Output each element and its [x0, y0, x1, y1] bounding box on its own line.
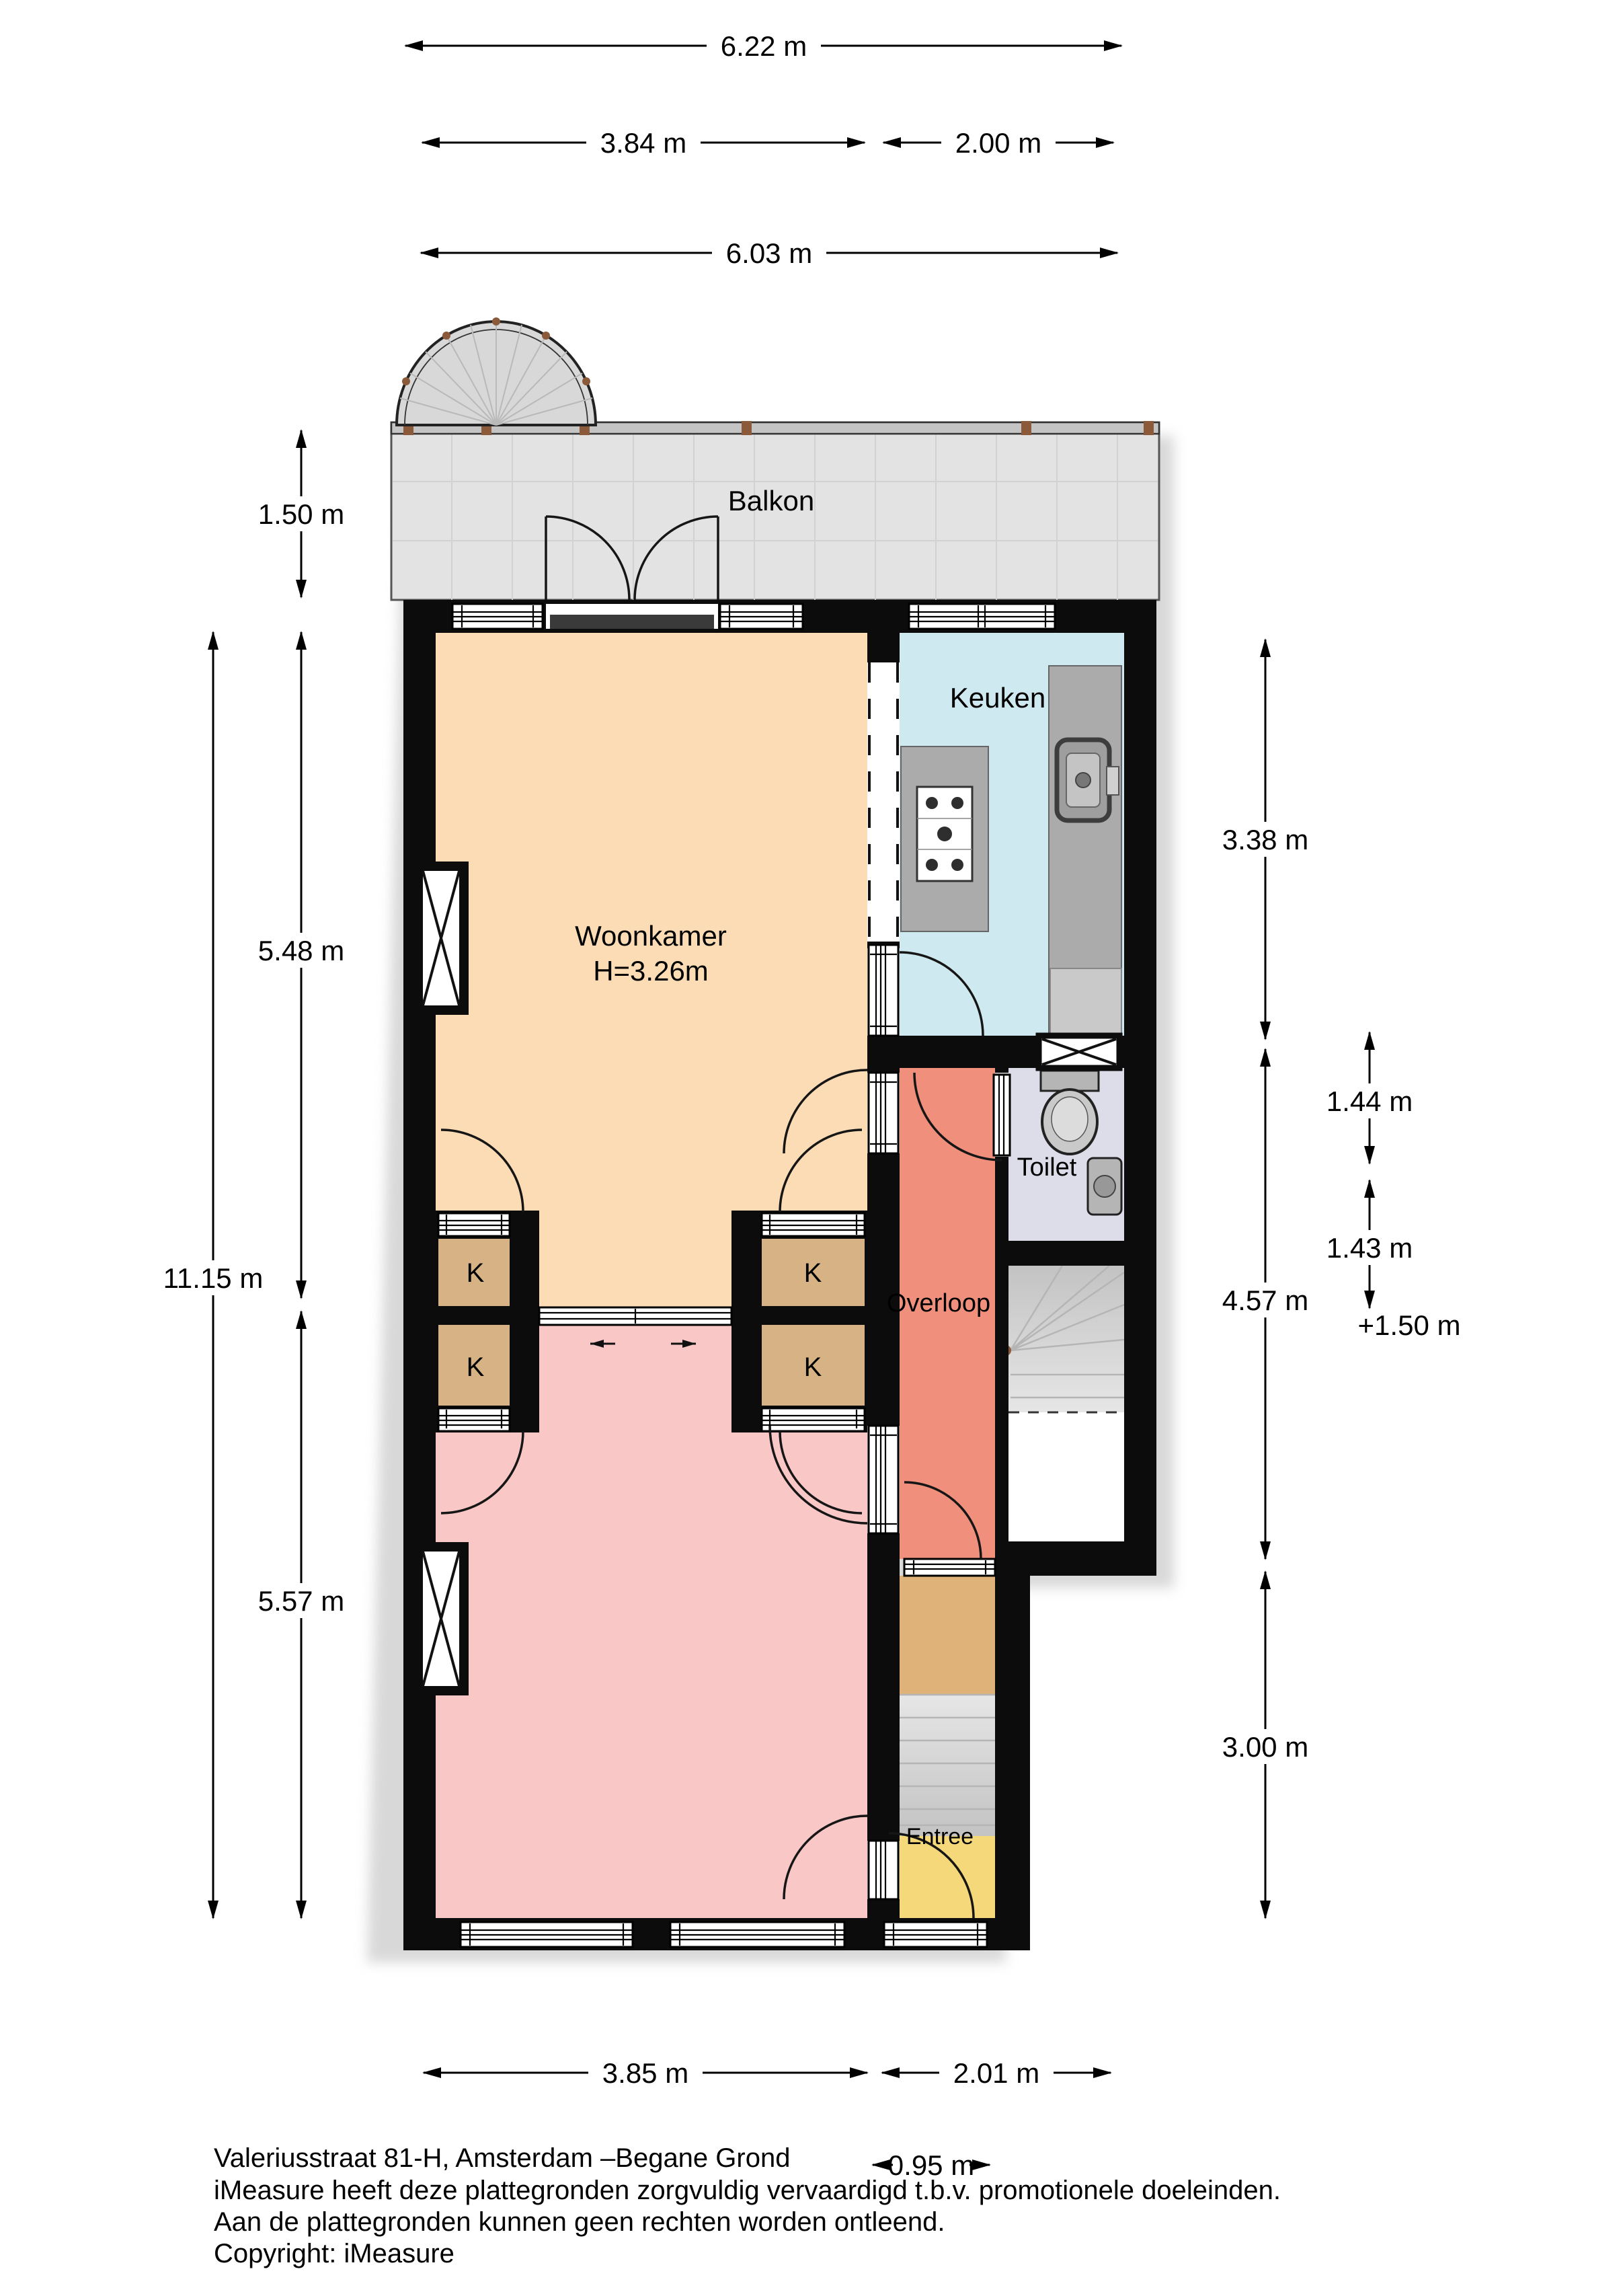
balcony-label: Balkon — [728, 485, 814, 516]
dim-stair-depth: 1.43 m — [1312, 1180, 1427, 1308]
chimney-icon-woonkamer — [418, 866, 464, 1010]
door-sill-overloop-end — [904, 1559, 995, 1576]
dim-top-right: 2.00 m — [883, 125, 1113, 160]
svg-text:3.38 m: 3.38 m — [1222, 824, 1308, 855]
svg-text:1.43 m: 1.43 m — [1327, 1232, 1413, 1264]
dim-total-depth: 11.15 m — [147, 632, 279, 1918]
entry-staircase — [900, 1695, 995, 1836]
svg-text:5.48 m: 5.48 m — [258, 935, 344, 966]
window — [720, 604, 803, 629]
dim-front-room-depth: 5.57 m — [244, 1311, 358, 1918]
stairwell-void — [1008, 1412, 1124, 1541]
svg-text:1.50 m: 1.50 m — [258, 498, 344, 530]
spiral-staircase-icon — [397, 317, 596, 425]
woonkamer-height-label: H=3.26m — [593, 955, 709, 987]
svg-text:11.15 m: 11.15 m — [163, 1262, 264, 1294]
door-sill-entree — [869, 1841, 898, 1899]
window — [452, 604, 543, 629]
toilet-label: Toilet — [1017, 1153, 1077, 1182]
closet-label: K — [467, 1352, 485, 1382]
stove-icon — [917, 787, 972, 881]
dim-toilet-depth: 1.44 m — [1312, 1032, 1427, 1163]
hall-floor — [900, 1576, 995, 1695]
svg-text:3.00 m: 3.00 m — [1222, 1731, 1308, 1763]
dim-bottom-right: 2.01 m — [882, 2055, 1111, 2090]
overloop-label: Overloop — [887, 1289, 990, 1317]
washbasin-icon — [1088, 1158, 1121, 1215]
door-sill-overloop — [869, 1073, 898, 1153]
dim-hall-depth: 3.00 m — [1208, 1572, 1322, 1918]
dim-keuken-depth: 3.38 m — [1208, 640, 1322, 1039]
svg-text:3.84 m: 3.84 m — [600, 127, 686, 159]
dim-top-overall: 6.22 m — [405, 28, 1121, 63]
toilet-icon — [1041, 1071, 1099, 1154]
vent-shaft-icon — [1039, 1036, 1119, 1068]
keuken-label: Keuken — [950, 682, 1045, 714]
closet-label: K — [467, 1258, 485, 1288]
footer-disclaimer-2: Aan de plattegronden kunnen geen rechten… — [214, 2207, 945, 2237]
door-sill-front-room — [869, 1426, 898, 1533]
svg-text:6.22 m: 6.22 m — [721, 30, 807, 62]
svg-text:2.01 m: 2.01 m — [953, 2057, 1039, 2089]
dim-balcony-depth: 1.50 m — [244, 430, 358, 597]
sink-icon — [1057, 740, 1119, 820]
window — [670, 1922, 844, 1947]
chimney-icon-front-room — [418, 1547, 464, 1691]
footer-disclaimer-1: iMeasure heeft deze plattegronden zorgvu… — [214, 2176, 1281, 2205]
svg-text:5.57 m: 5.57 m — [258, 1585, 344, 1617]
kitchen-appliance — [1050, 968, 1121, 1038]
svg-text:4.57 m: 4.57 m — [1222, 1285, 1308, 1316]
front-door-sill — [884, 1922, 987, 1947]
door-sill-toilet — [994, 1075, 1010, 1155]
window — [461, 1922, 633, 1947]
svg-text:2.00 m: 2.00 m — [955, 127, 1041, 159]
dim-bottom-left: 3.85 m — [424, 2055, 867, 2090]
dim-woonkamer-depth: 5.48 m — [244, 632, 358, 1298]
footer-address: Valeriusstraat 81-H, Amsterdam –Begane G… — [214, 2143, 790, 2173]
svg-text:1.44 m: 1.44 m — [1327, 1085, 1413, 1117]
entree-label: Entree — [906, 1824, 974, 1849]
window — [909, 604, 1055, 629]
dim-overloop-depth: 4.57 m — [1208, 1049, 1322, 1559]
svg-text:3.85 m: 3.85 m — [602, 2057, 688, 2089]
closet-label: K — [804, 1258, 822, 1288]
dim-balcony-width: 6.03 m — [421, 235, 1117, 270]
svg-text:6.03 m: 6.03 m — [726, 237, 812, 269]
dim-top-left: 3.84 m — [422, 125, 865, 160]
door-sill-kitchen — [869, 945, 898, 1036]
footer: Valeriusstraat 81-H, Amsterdam –Begane G… — [214, 2143, 1281, 2268]
floorplan-canvas: Balkon — [0, 0, 1623, 2296]
floorplan-page: Balkon — [0, 0, 1623, 2296]
balcony: Balkon — [391, 317, 1159, 600]
open-connection-dashed — [867, 662, 900, 942]
dim-level-label: +1.50 m — [1358, 1309, 1461, 1341]
woonkamer-label: Woonkamer — [575, 920, 727, 952]
footer-copyright: Copyright: iMeasure — [214, 2239, 454, 2268]
closet-label: K — [804, 1352, 822, 1382]
